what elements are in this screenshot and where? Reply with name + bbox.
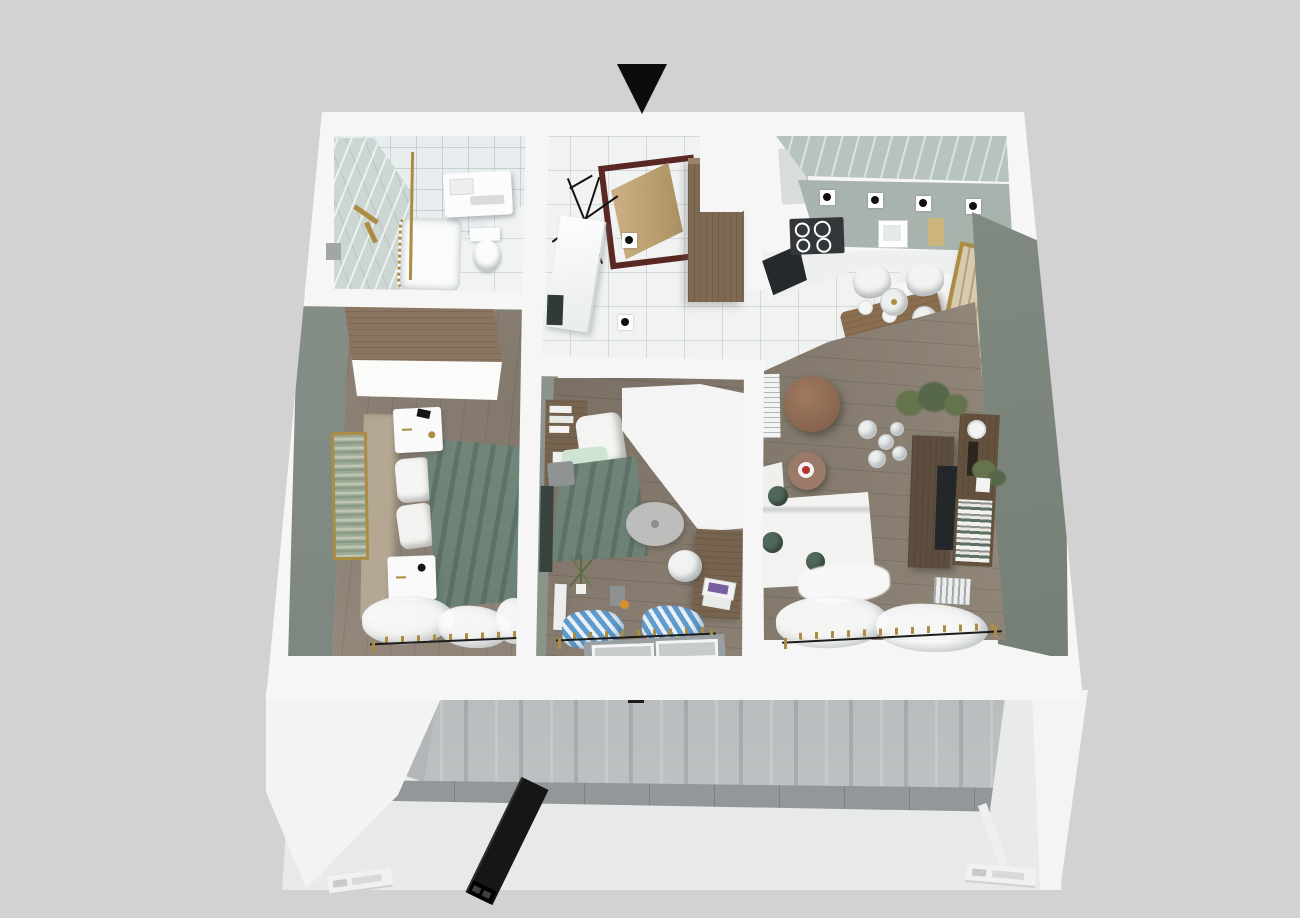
cutting-board xyxy=(928,218,945,247)
rug-center xyxy=(651,520,659,528)
gold-handle xyxy=(396,576,406,578)
rod-bracket xyxy=(558,638,561,649)
profile-hole xyxy=(992,870,1024,880)
burner xyxy=(813,221,831,239)
pendant-globe xyxy=(868,450,886,468)
rod-bracket xyxy=(372,642,375,653)
induction-stove xyxy=(789,217,844,255)
nightstand-top xyxy=(393,407,443,453)
bathtub xyxy=(397,217,462,291)
kitchen-sink xyxy=(878,220,908,248)
laptop xyxy=(700,577,737,612)
burner xyxy=(796,238,810,252)
nightstand-bottom xyxy=(387,555,437,601)
gold-handle xyxy=(402,428,412,431)
cabinet-spotlight xyxy=(820,190,835,205)
beam-hole xyxy=(482,890,492,899)
laptop-display xyxy=(708,582,729,594)
plant-pot-white xyxy=(976,478,991,493)
cake xyxy=(802,466,810,474)
books xyxy=(549,416,573,423)
profile-hole xyxy=(333,879,348,888)
plant-foliage xyxy=(988,470,1006,486)
wall-board xyxy=(539,486,553,572)
beam-end-cap xyxy=(467,880,497,904)
plate xyxy=(858,300,873,315)
air-conditioner xyxy=(761,374,780,438)
pendant-globe xyxy=(892,446,907,461)
phone xyxy=(416,408,430,419)
sink-basin xyxy=(883,225,901,241)
side-table-with-cake xyxy=(788,452,826,490)
cabinet-spotlight xyxy=(868,193,883,208)
beam-hole xyxy=(472,885,482,894)
floorplan-render xyxy=(0,0,1300,918)
radiator xyxy=(933,577,970,605)
gold-cup xyxy=(428,431,435,438)
book-stack xyxy=(955,499,992,563)
decor-dot xyxy=(418,564,426,572)
basin xyxy=(449,178,474,195)
entrance-direction-marker xyxy=(617,64,667,114)
towel xyxy=(470,195,504,206)
pendant-globe xyxy=(878,434,894,450)
hall-spotlight xyxy=(618,315,633,330)
sofa-cushion-green xyxy=(762,532,783,553)
orange-ball xyxy=(620,600,629,609)
wall-niche xyxy=(326,243,341,260)
plant-foliage xyxy=(944,394,968,416)
burner xyxy=(795,222,811,238)
hall-wall-art xyxy=(546,295,563,326)
bedroom1-wall-art xyxy=(331,432,369,561)
profile-hole xyxy=(972,868,987,876)
round-gray-rug xyxy=(626,502,684,546)
pendant-globe xyxy=(890,422,904,436)
rod-bracket xyxy=(994,626,997,637)
pendant-globe xyxy=(858,420,877,439)
rod-bracket xyxy=(784,638,787,649)
cabinet-spotlight xyxy=(916,196,931,211)
gray-pouf xyxy=(547,461,575,487)
round-coffee-table-large xyxy=(784,376,840,432)
books xyxy=(549,426,569,433)
coat-rack-hook xyxy=(569,175,593,190)
hall-spotlight xyxy=(622,233,637,248)
vase xyxy=(967,419,987,439)
plant-pot xyxy=(576,584,586,594)
cabinet-spotlight xyxy=(966,199,981,214)
books xyxy=(550,406,572,413)
desk-chair xyxy=(668,550,702,582)
pendant-lamp xyxy=(880,288,908,316)
profile-hole xyxy=(351,874,382,885)
washbasin-cabinet xyxy=(443,170,513,217)
sofa-cushion-green xyxy=(768,486,788,506)
pendant-bulb xyxy=(891,299,897,305)
burner xyxy=(816,238,832,254)
toilet-bowl xyxy=(473,240,500,271)
